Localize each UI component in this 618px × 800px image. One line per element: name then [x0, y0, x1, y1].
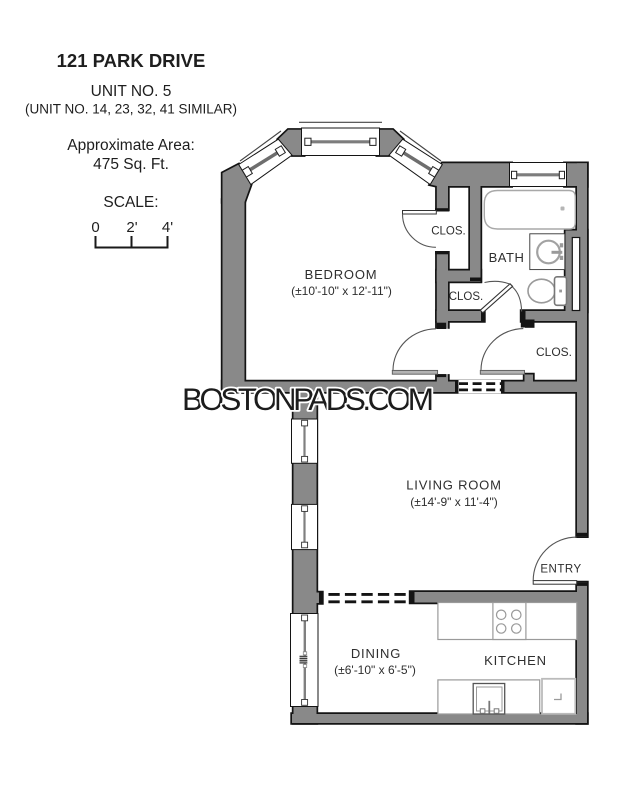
svg-text:Approximate Area:: Approximate Area:: [67, 137, 195, 154]
svg-text:BATH: BATH: [489, 250, 525, 265]
svg-text:4': 4': [162, 219, 173, 236]
svg-text:BOSTONPADS.COM: BOSTONPADS.COM: [182, 381, 435, 417]
svg-text:CLOS.: CLOS.: [449, 291, 484, 303]
svg-text:CLOS.: CLOS.: [431, 226, 466, 238]
svg-text:LIVING ROOM: LIVING ROOM: [406, 478, 501, 493]
svg-text:KITCHEN: KITCHEN: [484, 653, 547, 668]
svg-text:0: 0: [91, 219, 99, 236]
svg-text:(±10'-10" x 12'-11"): (±10'-10" x 12'-11"): [291, 284, 392, 298]
svg-text:(±14'-9" x 11'-4"): (±14'-9" x 11'-4"): [410, 495, 498, 509]
svg-text:2': 2': [126, 219, 137, 236]
svg-text:SCALE:: SCALE:: [103, 194, 158, 211]
svg-text:(±6'-10" x 6'-5"): (±6'-10" x 6'-5"): [334, 663, 416, 677]
svg-text:BEDROOM: BEDROOM: [305, 267, 378, 282]
svg-text:CLOS.: CLOS.: [536, 345, 572, 359]
svg-text:121 PARK DRIVE: 121 PARK DRIVE: [57, 50, 206, 71]
svg-text:ENTRY: ENTRY: [540, 564, 581, 576]
svg-text:DINING: DINING: [351, 646, 401, 661]
svg-text:UNIT NO. 5: UNIT NO. 5: [91, 83, 172, 100]
svg-text:(UNIT NO. 14, 23, 32, 41 SIMIL: (UNIT NO. 14, 23, 32, 41 SIMILAR): [25, 102, 237, 117]
svg-text:475 Sq. Ft.: 475 Sq. Ft.: [93, 156, 169, 173]
